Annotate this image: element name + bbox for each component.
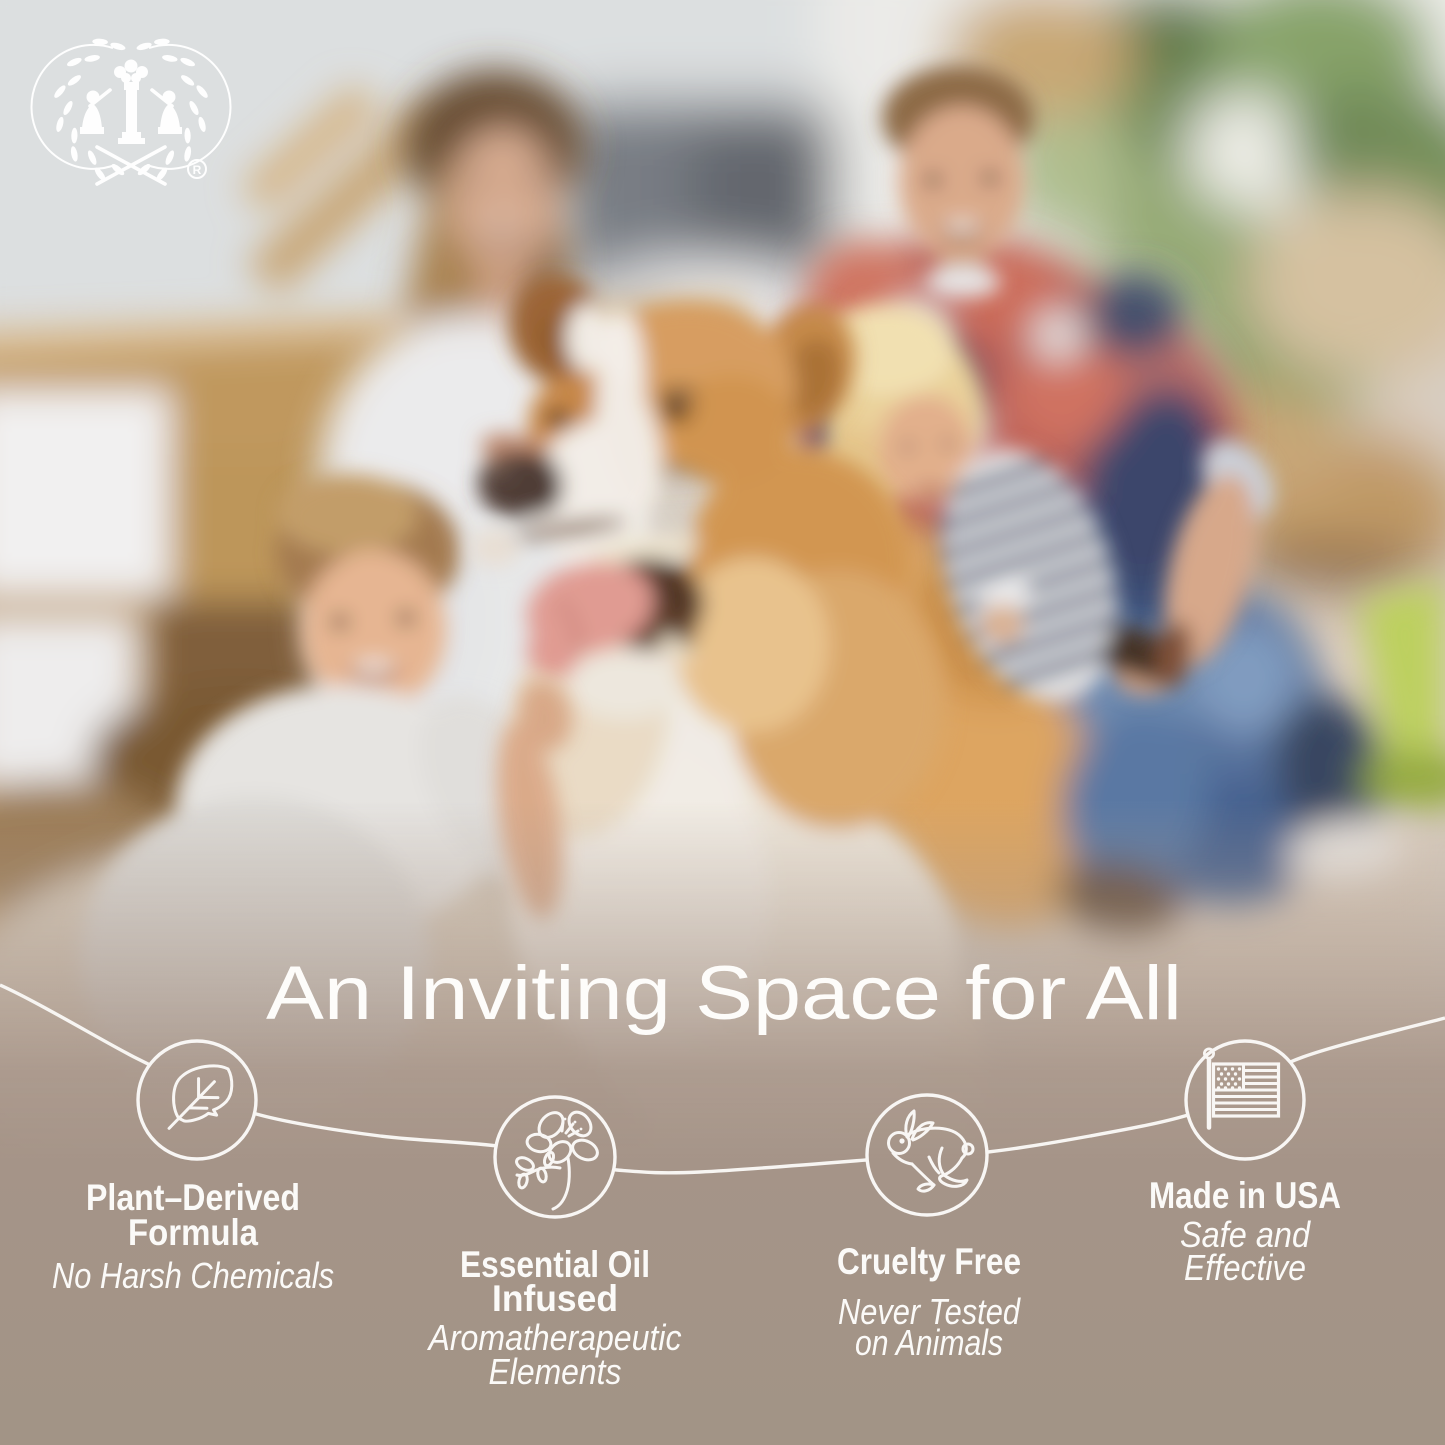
svg-text:Cruelty Free: Cruelty Free: [837, 1241, 1021, 1282]
svg-text:on Animals: on Animals: [855, 1322, 1003, 1363]
svg-text:Formula: Formula: [128, 1212, 258, 1253]
svg-text:An Inviting Space for All: An Inviting Space for All: [266, 951, 1182, 1036]
svg-text:Made in USA: Made in USA: [1149, 1175, 1341, 1216]
svg-text:R: R: [193, 163, 202, 177]
svg-text:Elements: Elements: [489, 1351, 622, 1392]
svg-text:Infused: Infused: [492, 1278, 618, 1319]
svg-text:No Harsh Chemicals: No Harsh Chemicals: [52, 1255, 334, 1296]
svg-text:Effective: Effective: [1184, 1247, 1306, 1288]
